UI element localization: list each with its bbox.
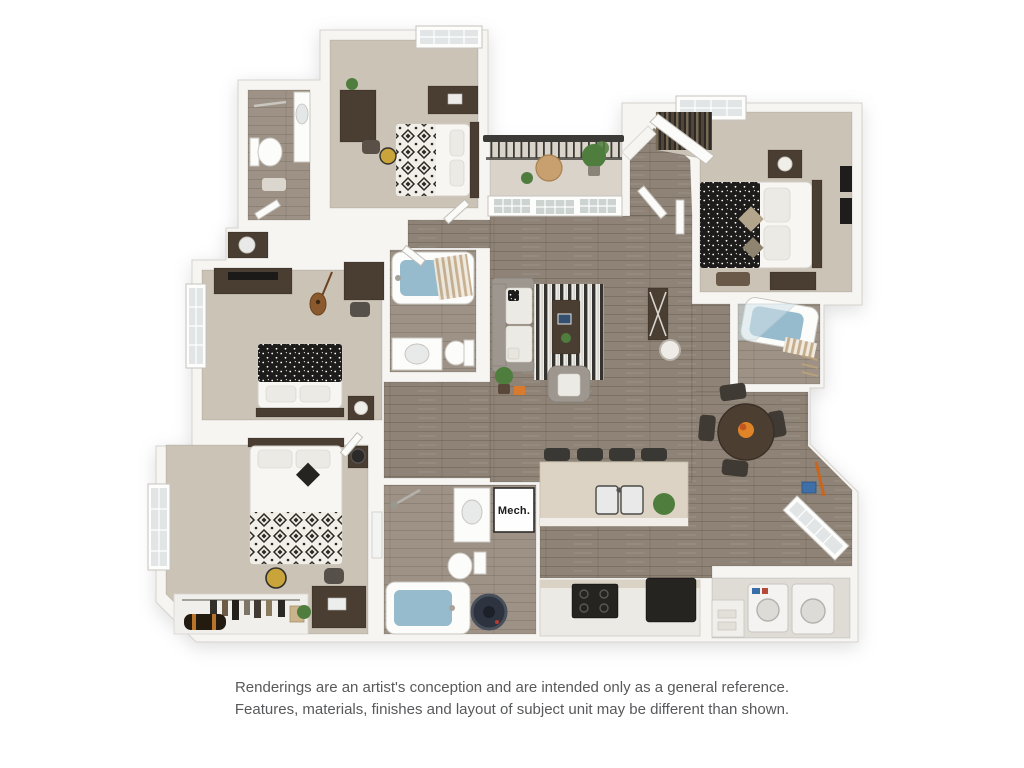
bedroom1-window	[416, 26, 482, 48]
bedroom2-lamp	[355, 402, 368, 415]
balcony-plant-leaf	[595, 141, 609, 155]
balcony-railing	[483, 135, 624, 142]
hall-top-floor	[408, 220, 490, 248]
duffel-bag	[184, 614, 226, 630]
bathroom3-bathtub	[386, 582, 470, 634]
french-doors	[488, 196, 622, 216]
bedroom1-desk-chair	[362, 140, 380, 154]
vanity-nook	[228, 232, 268, 258]
stove	[572, 584, 618, 618]
kitchen-island	[540, 462, 688, 526]
bedroom2-desk	[344, 262, 384, 300]
hall-right-floor	[692, 304, 730, 392]
washer	[748, 584, 788, 632]
dryer	[792, 584, 834, 634]
bathroom3-sink	[462, 500, 482, 524]
bedroom4-desk	[770, 272, 816, 290]
shower-head	[390, 501, 398, 509]
bathroom3-window-slot	[372, 512, 382, 558]
refrigerator	[646, 578, 696, 622]
dustpan	[802, 482, 816, 493]
mech-closet: Mech.	[494, 488, 534, 532]
bedroom4-door	[676, 200, 684, 234]
hall-center-floor	[384, 382, 490, 478]
bedroom1-laptop	[448, 94, 462, 104]
mech-label: Mech.	[498, 505, 530, 517]
centerpiece-flowers	[738, 422, 754, 438]
nook-sink	[239, 237, 255, 253]
bedroom2-dresser	[214, 268, 292, 294]
bathroom2-bathtub	[392, 252, 474, 304]
balcony-small-plant	[521, 172, 533, 184]
bathroom1-toilet	[258, 138, 282, 166]
bedroom2-tv	[228, 272, 278, 280]
bedroom3-closet	[174, 594, 308, 634]
island-sink-right	[621, 486, 643, 514]
bedroom3-fan	[351, 449, 365, 463]
bedroom4-bed	[700, 180, 822, 268]
island-plant	[653, 493, 675, 515]
blanket-basket	[660, 340, 680, 360]
bedroom2-window	[186, 284, 206, 368]
wall-art-1	[840, 166, 852, 192]
bathroom3-toilet	[448, 553, 472, 579]
bedroom2-bed	[256, 344, 344, 417]
laundry-cabinet	[712, 600, 744, 637]
disclaimer: Renderings are an artist's conception an…	[0, 677, 1024, 721]
bedroom3-window	[148, 484, 170, 570]
armchair	[548, 366, 590, 402]
balcony-table	[536, 155, 562, 181]
disclaimer-line-1: Renderings are an artist's conception an…	[0, 677, 1024, 699]
water-heater	[472, 595, 506, 629]
console-table	[648, 288, 668, 340]
floorplan-rendering: Mech.	[0, 0, 1024, 768]
bathroom1-bathmat	[262, 178, 286, 191]
bathroom2-toilet-tank	[464, 340, 474, 366]
bedroom2-desk-chair	[350, 302, 370, 317]
bathroom2-sink	[405, 344, 429, 364]
bedroom3-bed	[248, 438, 344, 564]
bathroom1-sink	[296, 104, 308, 124]
coffee-table	[552, 300, 580, 354]
bathroom1-vanity	[294, 92, 310, 162]
wall-art-2	[840, 198, 852, 224]
bedroom4-lamp	[778, 157, 792, 171]
disclaimer-line-2: Features, materials, finishes and layout…	[0, 699, 1024, 721]
balcony-plant-pot	[588, 166, 600, 176]
bedroom1-plant	[346, 78, 358, 90]
bedroom1-desk	[340, 90, 376, 142]
bedroom1-pouf	[380, 148, 396, 164]
kitchen-counter	[540, 578, 700, 636]
bedroom3-pouf	[266, 568, 286, 588]
island-faucet	[616, 487, 621, 492]
page: Mech.	[0, 0, 1024, 768]
bedroom1-bed	[396, 122, 479, 198]
bathroom3-toilet-tank	[474, 552, 486, 574]
island-sink-left	[596, 486, 618, 514]
bedroom4-bench	[716, 272, 750, 286]
